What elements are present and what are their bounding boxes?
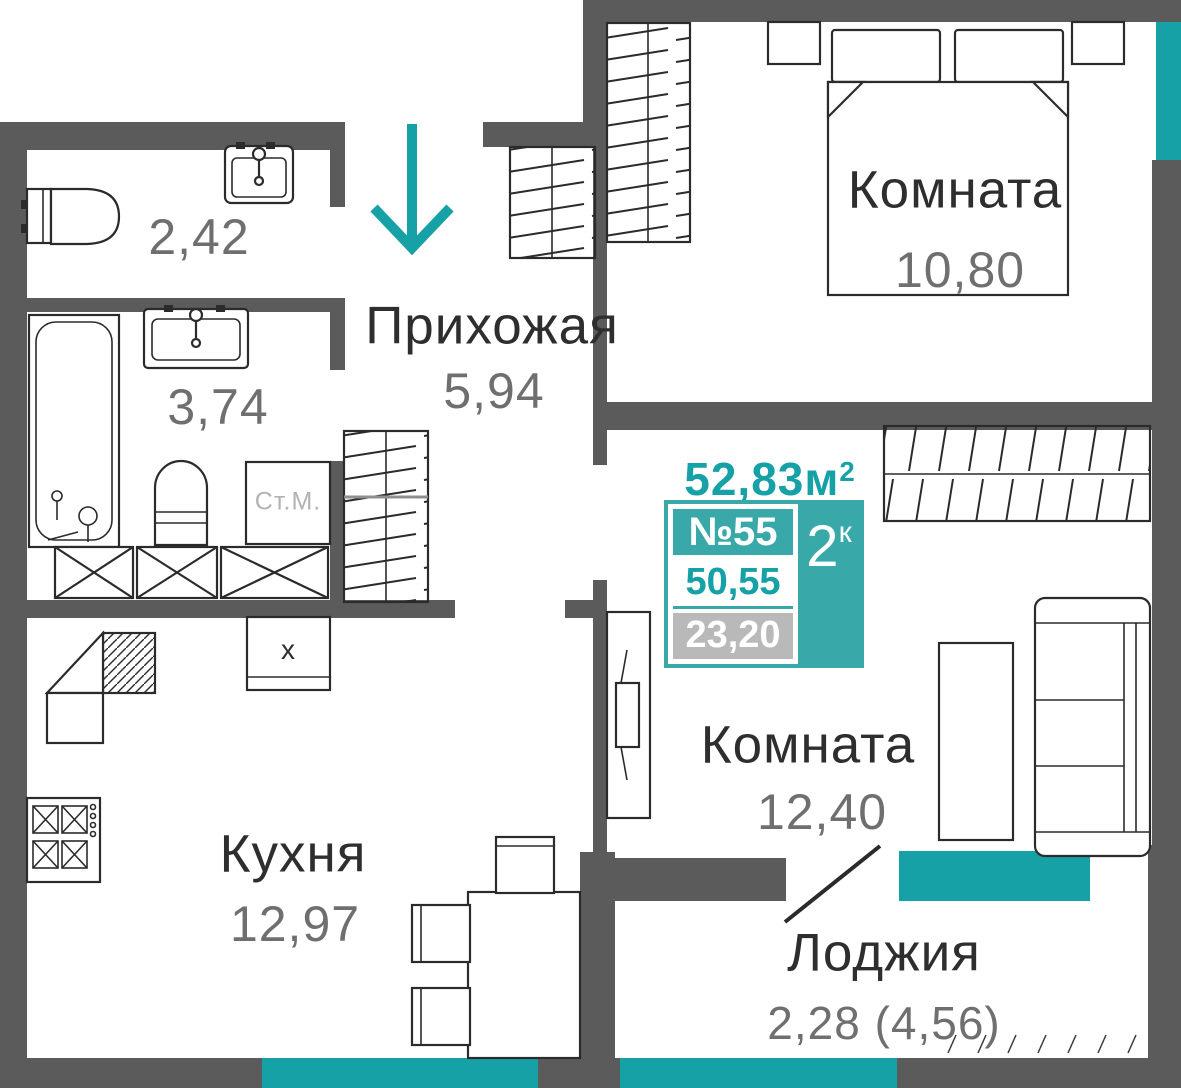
kitchen-unit-label: x (281, 636, 295, 664)
hallway-area-label: 5,94 (443, 366, 544, 416)
bathroom-toilet-icon (155, 461, 207, 545)
stove-icon (27, 798, 100, 882)
living-area-value: 50,55 (673, 559, 793, 608)
secondary-area-value: 23,20 (673, 613, 793, 659)
washing-machine-label: Ст.М. (255, 490, 321, 515)
living-wardrobe-icon (884, 426, 1150, 521)
loggia-name-label: Лоджия (787, 927, 981, 980)
bathroom-sink-icon (144, 305, 248, 368)
total-area-label: 52,83м2 (684, 456, 856, 502)
entry-wardrobe-icon (510, 147, 595, 258)
living-loggia-window (899, 851, 1090, 901)
hallway-name-label: Прихожая (365, 300, 619, 353)
dining-table-icon (412, 837, 580, 1058)
living-name-label: Комната (701, 719, 916, 772)
wc-area-label: 2,42 (148, 212, 249, 262)
apartment-number-badge: №55 (673, 509, 793, 555)
sofa-icon (1035, 598, 1150, 856)
living-area-label: 12,40 (757, 787, 887, 837)
loggia-area-label: 2,28 (4,56) (767, 1000, 1000, 1046)
bathtub-icon (29, 315, 119, 547)
kitchen-area-label: 12,97 (230, 899, 360, 949)
hall-wardrobe-icon (344, 431, 428, 602)
duct-boxes (55, 547, 328, 598)
bedroom-area-label: 10,80 (895, 245, 1025, 295)
wc-toilet-icon (21, 189, 119, 244)
desk-icon (939, 643, 1013, 840)
apartment-info-card: №55 50,55 23,20 2к (664, 500, 864, 668)
entry-arrow-icon (374, 124, 450, 248)
bedroom-name-label: Комната (848, 164, 1063, 217)
rooms-count-badge: 2к (798, 504, 860, 664)
bedroom-window (1156, 22, 1181, 160)
wc-sink-icon (225, 142, 293, 203)
kitchen-window (262, 1058, 538, 1088)
kitchen-name-label: Кухня (220, 828, 367, 881)
bathroom-area-label: 3,74 (167, 382, 268, 432)
loggia-glazing (620, 1058, 897, 1088)
bedroom-wardrobe-icon (607, 23, 690, 242)
tv-stand-icon (607, 612, 650, 818)
apartment-floor-plan: 2,42 3,74 Прихожая 5,94 Комната 10,80 52… (0, 0, 1181, 1088)
loggia-door-swing (785, 846, 880, 922)
